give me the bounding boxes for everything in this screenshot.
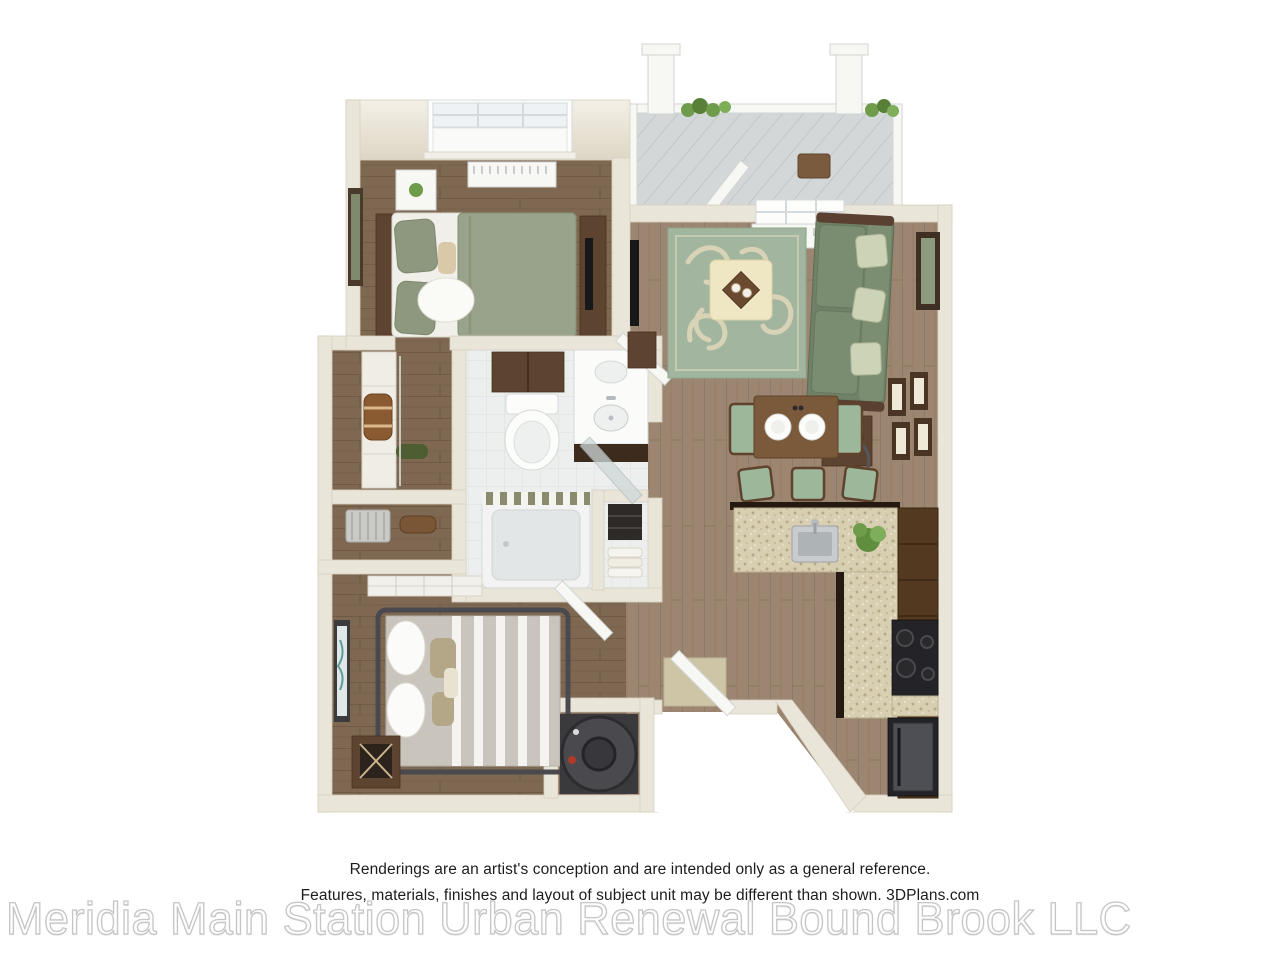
sofa xyxy=(806,212,894,412)
balcony-column-right xyxy=(836,52,862,114)
bar-stool-1 xyxy=(738,466,774,502)
vanity-sink-reflection xyxy=(595,361,627,383)
bedroom2-bolster-pillow xyxy=(444,668,458,698)
bedroom1-window xyxy=(424,100,576,159)
ottoman xyxy=(710,260,772,320)
watermark-text: Meridia Main Station Urban Renewal Bound… xyxy=(6,893,1132,945)
bedroom2-pillow-2 xyxy=(387,683,425,737)
bedroom2-north-wall xyxy=(318,560,466,574)
sofa-pillow-3 xyxy=(850,342,881,375)
bedroom1-bed xyxy=(376,213,576,337)
bathroom-east-wall-lower xyxy=(648,498,662,602)
bedroom1-nightstand-plant xyxy=(409,183,423,197)
entry-wall-right xyxy=(730,700,777,714)
utility-closet xyxy=(560,714,638,794)
closet-duffel-bag xyxy=(364,394,392,440)
sofa-pillow-2 xyxy=(851,287,886,323)
bedroom2-closet xyxy=(368,576,482,596)
balcony-deck xyxy=(634,112,896,208)
bedroom1-headboard xyxy=(376,214,392,336)
balcony-crate xyxy=(798,154,830,178)
bedroom1-tv xyxy=(585,238,593,310)
east-wall xyxy=(938,205,952,812)
bedroom1-white-pillow xyxy=(418,278,474,322)
bedroom1-east-wall xyxy=(612,158,630,340)
utility-east-wall xyxy=(640,698,654,812)
dining-area xyxy=(730,396,862,458)
bedroom1-ac-unit xyxy=(468,162,556,187)
balcony xyxy=(628,44,902,218)
south-wall-left xyxy=(318,795,658,812)
bedroom1-south-wall-a xyxy=(346,336,395,350)
bedroom2-pillow-1 xyxy=(387,621,425,675)
bedroom1-wall-art xyxy=(351,194,360,280)
balcony-column-left xyxy=(648,52,674,114)
bedroom1-duvet xyxy=(458,213,576,337)
balcony-rail-east xyxy=(893,104,902,208)
bedroom1-pillow-1 xyxy=(394,218,438,273)
shower-curtain xyxy=(482,492,590,505)
bar-stool-2 xyxy=(792,468,824,500)
window-sill xyxy=(424,152,576,159)
towel-stack xyxy=(608,548,642,577)
closet-divider-wall xyxy=(332,490,466,504)
linen-shelf-unit xyxy=(608,504,642,540)
bar-stool-3 xyxy=(842,466,878,502)
sofa-pillow-1 xyxy=(855,234,888,268)
bedroom2-bed xyxy=(378,610,568,772)
closet-clutch xyxy=(400,516,436,533)
screenshot-root: Renderings are an artist's conception an… xyxy=(0,0,1280,960)
water-heater-valve xyxy=(568,756,576,764)
bar-stools xyxy=(738,466,878,502)
bedroom1-accent-pillow xyxy=(438,242,456,274)
tv-console xyxy=(628,332,656,368)
counter-strip xyxy=(892,696,938,716)
balcony-column-cap-right xyxy=(830,44,868,55)
window-shade xyxy=(433,128,567,152)
vanity-faucet xyxy=(606,396,616,400)
toilet xyxy=(505,394,559,470)
bathtub xyxy=(482,498,590,588)
balcony-column-cap-left xyxy=(642,44,680,55)
linen-closet-west-wall xyxy=(592,490,604,590)
disclaimer-line-1: Renderings are an artist's conception an… xyxy=(0,861,1280,879)
living-wall-art xyxy=(921,238,935,304)
living-tv xyxy=(630,240,639,326)
floorplan-rendering xyxy=(0,0,1280,860)
